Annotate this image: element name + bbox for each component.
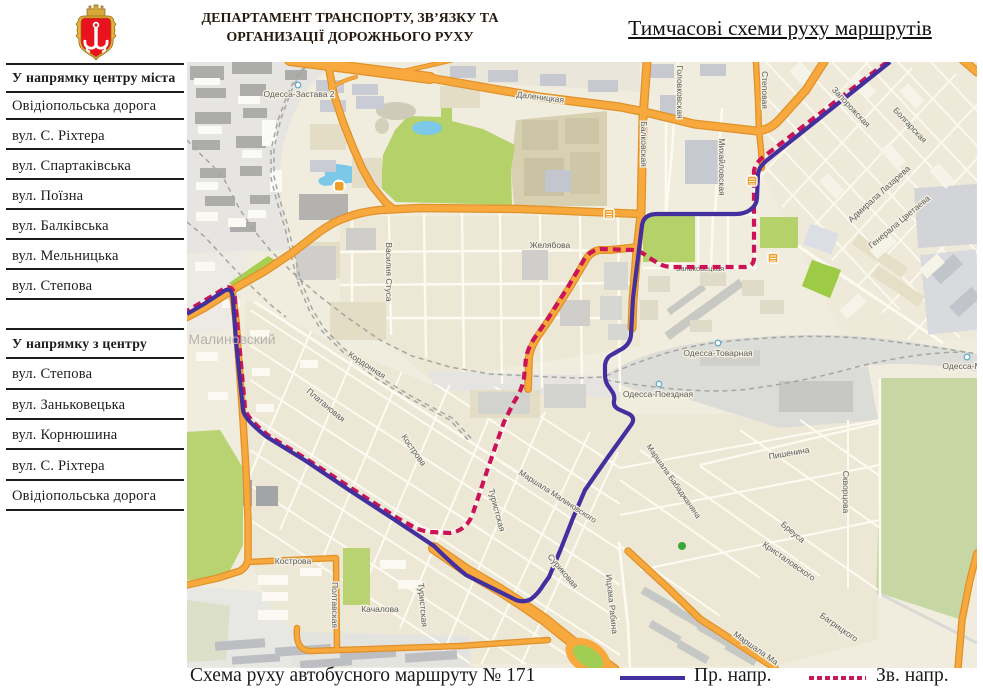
svg-text:Одесса-Застава 2: Одесса-Застава 2 — [263, 89, 334, 99]
svg-text:Одесса-М: Одесса-М — [942, 361, 977, 371]
svg-text:Малиновский: Малиновский — [188, 331, 275, 347]
svg-text:Степовая: Степовая — [760, 71, 770, 109]
svg-text:Одесса-Поездная: Одесса-Поездная — [623, 389, 694, 399]
svg-text:Качалова: Качалова — [361, 604, 399, 614]
svg-text:Желябова: Желябова — [530, 240, 571, 250]
svg-text:Кострова: Кострова — [275, 556, 312, 566]
svg-text:Головковская: Головковская — [675, 65, 685, 119]
svg-text:Михайловская: Михайловская — [717, 138, 727, 196]
svg-text:Василия Стуса: Василия Стуса — [384, 242, 394, 302]
svg-text:Скворцова: Скворцова — [841, 471, 851, 514]
svg-text:Полтавская: Полтавская — [330, 582, 340, 628]
svg-text:Балковская: Балковская — [639, 121, 649, 167]
svg-text:Одесса-Товарная: Одесса-Товарная — [683, 348, 753, 358]
